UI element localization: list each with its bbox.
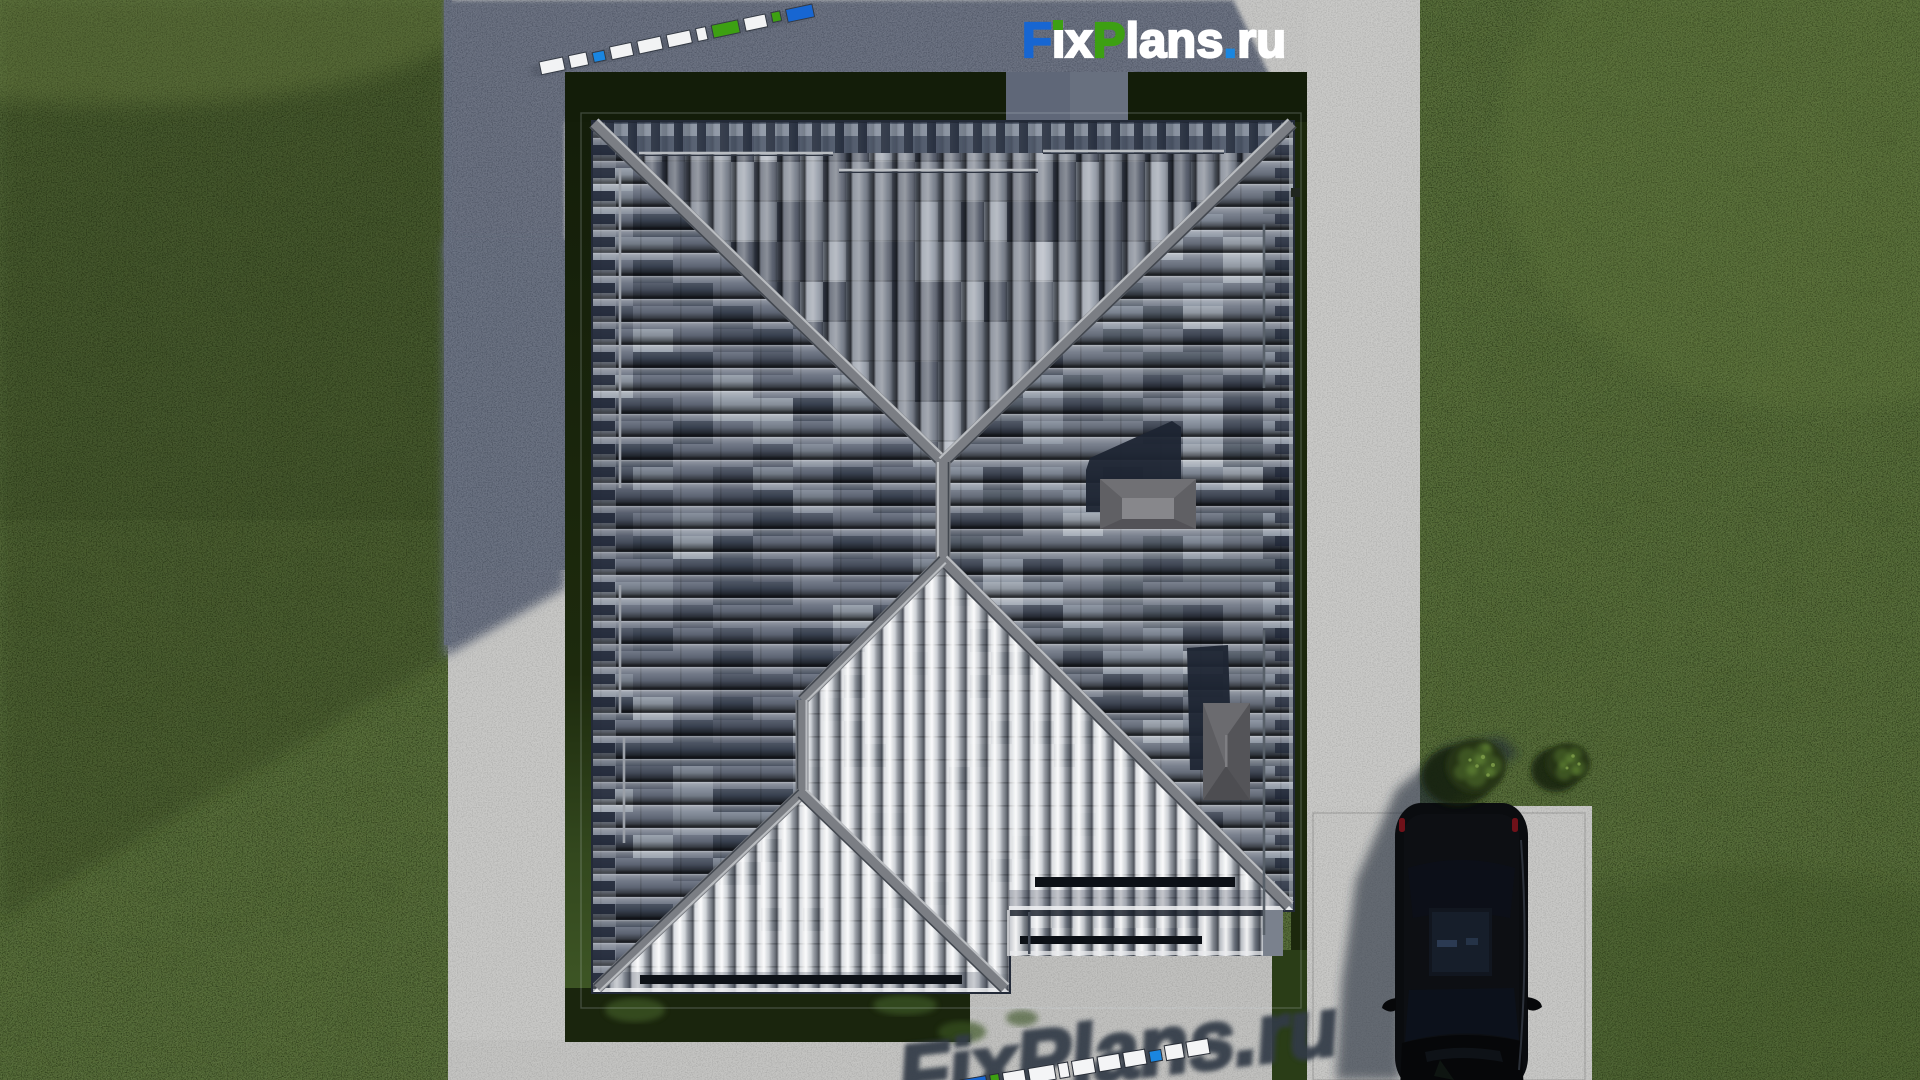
svg-text:s: s — [1196, 14, 1223, 68]
svg-text:a: a — [1139, 14, 1167, 68]
svg-text:P: P — [1093, 14, 1126, 68]
svg-text:r: r — [1237, 14, 1256, 68]
svg-text:.: . — [1224, 14, 1238, 68]
svg-text:F: F — [1022, 14, 1052, 68]
svg-text:l: l — [1126, 14, 1140, 68]
svg-text:n: n — [1166, 14, 1196, 68]
svg-text:u: u — [1256, 14, 1286, 68]
svg-text:x: x — [1066, 14, 1093, 68]
